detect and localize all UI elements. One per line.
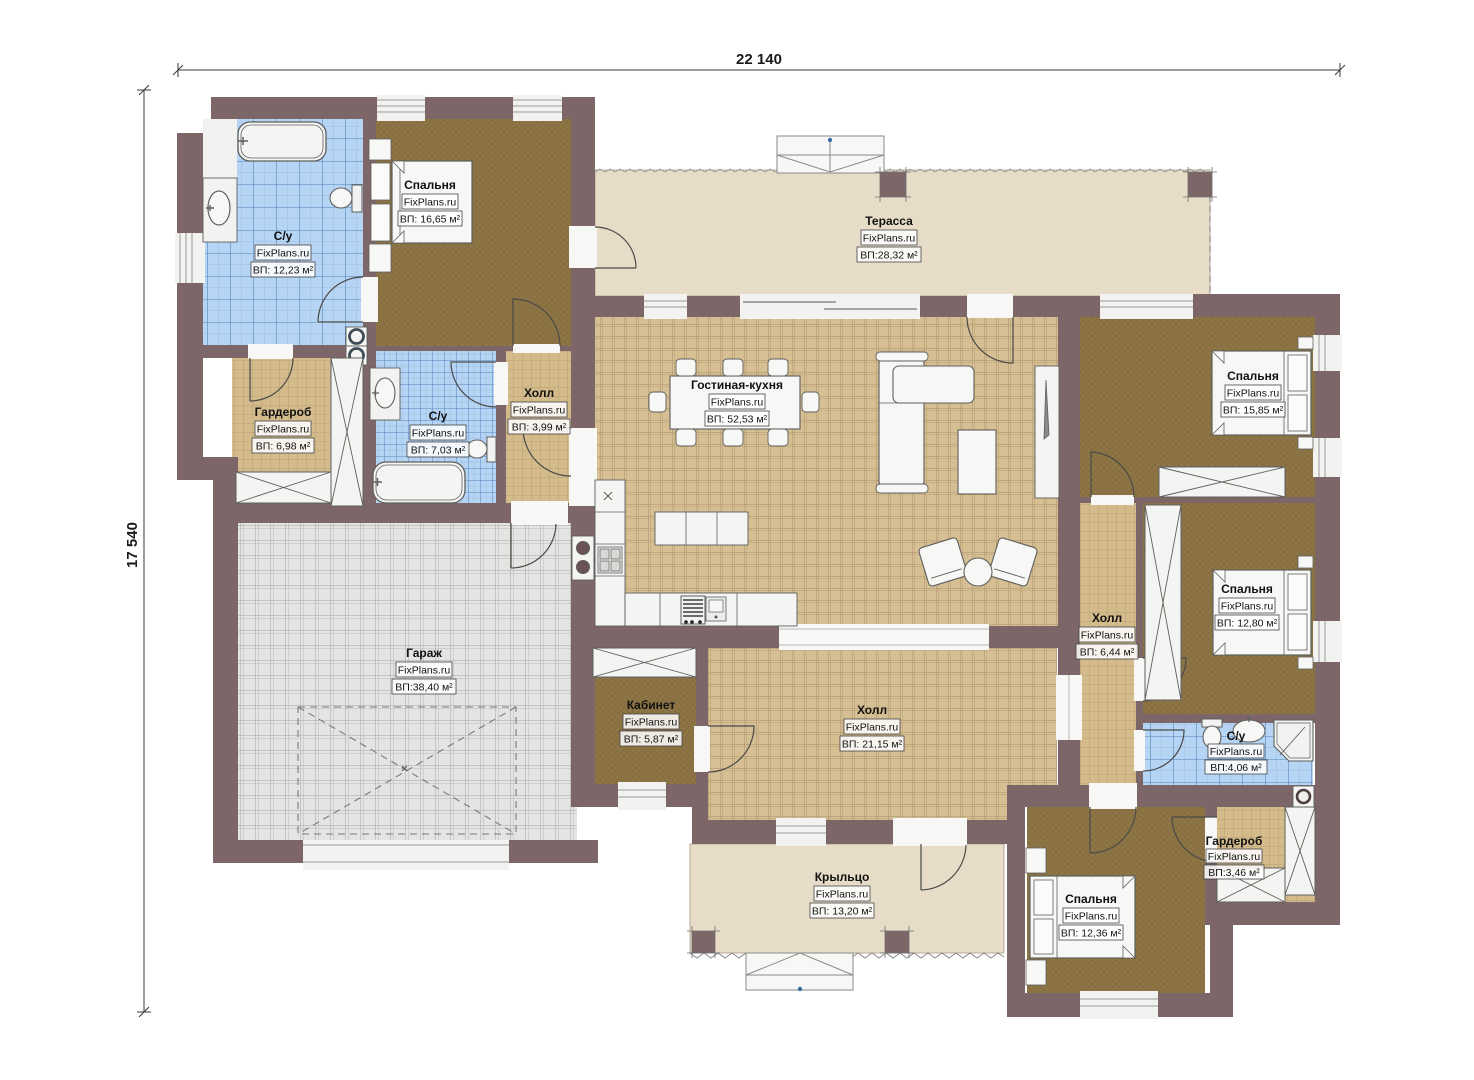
svg-text:ВП: 16,65 м²: ВП: 16,65 м²	[400, 214, 461, 226]
svg-text:ВП: 6,98 м²: ВП: 6,98 м²	[256, 441, 311, 453]
svg-text:Гардероб: Гардероб	[1206, 834, 1263, 848]
svg-text:ВП: 12,80 м²: ВП: 12,80 м²	[1217, 618, 1278, 630]
svg-text:Гараж: Гараж	[406, 646, 442, 660]
svg-text:FixPlans.ru: FixPlans.ru	[846, 722, 899, 734]
svg-text:Спальня: Спальня	[1227, 369, 1279, 383]
svg-text:ВП: 13,20 м²: ВП: 13,20 м²	[812, 906, 873, 918]
svg-text:ВП:3,46 м²: ВП:3,46 м²	[1208, 867, 1260, 879]
svg-text:FixPlans.ru: FixPlans.ru	[513, 405, 566, 417]
svg-text:FixPlans.ru: FixPlans.ru	[1227, 388, 1280, 400]
svg-text:Холл: Холл	[857, 703, 887, 717]
svg-text:ВП: 12,36 м²: ВП: 12,36 м²	[1061, 928, 1122, 940]
svg-text:ВП: 15,85 м²: ВП: 15,85 м²	[1223, 405, 1284, 417]
svg-text:Спальня: Спальня	[1221, 582, 1273, 596]
svg-text:ВП: 12,23 м²: ВП: 12,23 м²	[253, 265, 314, 277]
svg-text:Спальня: Спальня	[1065, 892, 1117, 906]
svg-text:FixPlans.ru: FixPlans.ru	[863, 233, 916, 245]
svg-text:ВП: 3,99 м²: ВП: 3,99 м²	[512, 422, 567, 434]
svg-text:FixPlans.ru: FixPlans.ru	[257, 424, 310, 436]
svg-text:FixPlans.ru: FixPlans.ru	[1210, 746, 1263, 758]
svg-text:FixPlans.ru: FixPlans.ru	[1221, 601, 1274, 613]
svg-text:Крыльцо: Крыльцо	[815, 870, 870, 884]
svg-text:FixPlans.ru: FixPlans.ru	[1065, 911, 1118, 923]
svg-text:ВП: 7,03 м²: ВП: 7,03 м²	[411, 445, 466, 457]
svg-text:FixPlans.ru: FixPlans.ru	[398, 665, 451, 677]
svg-text:Гардероб: Гардероб	[255, 405, 312, 419]
svg-text:FixPlans.ru: FixPlans.ru	[1208, 851, 1261, 863]
svg-text:FixPlans.ru: FixPlans.ru	[412, 428, 465, 440]
svg-text:FixPlans.ru: FixPlans.ru	[711, 397, 764, 409]
svg-text:FixPlans.ru: FixPlans.ru	[257, 248, 310, 260]
svg-text:FixPlans.ru: FixPlans.ru	[625, 717, 678, 729]
svg-text:ВП: 52,53 м²: ВП: 52,53 м²	[707, 414, 768, 426]
svg-text:Гостиная-кухня: Гостиная-кухня	[691, 378, 783, 392]
svg-text:Терасса: Терасса	[865, 214, 913, 228]
svg-text:Кабинет: Кабинет	[627, 698, 676, 712]
svg-text:ВП:28,32 м²: ВП:28,32 м²	[860, 250, 918, 262]
svg-text:Спальня: Спальня	[404, 178, 456, 192]
svg-text:FixPlans.ru: FixPlans.ru	[816, 889, 869, 901]
svg-text:ВП:38,40 м²: ВП:38,40 м²	[395, 682, 453, 694]
svg-text:FixPlans.ru: FixPlans.ru	[1081, 630, 1134, 642]
svg-text:22 140: 22 140	[736, 51, 782, 68]
svg-text:С/у: С/у	[429, 409, 448, 423]
svg-text:FixPlans.ru: FixPlans.ru	[404, 197, 457, 209]
svg-text:ВП: 21,15 м²: ВП: 21,15 м²	[842, 739, 903, 751]
svg-text:17 540: 17 540	[124, 522, 141, 568]
svg-text:ВП: 6,44 м²: ВП: 6,44 м²	[1080, 647, 1135, 659]
svg-text:Холл: Холл	[1092, 611, 1122, 625]
svg-text:ВП:4,06 м²: ВП:4,06 м²	[1210, 762, 1262, 774]
svg-text:ВП: 5,87 м²: ВП: 5,87 м²	[624, 734, 679, 746]
svg-text:Холл: Холл	[524, 386, 554, 400]
svg-text:С/у: С/у	[274, 229, 293, 243]
svg-text:С/у: С/у	[1227, 729, 1246, 743]
